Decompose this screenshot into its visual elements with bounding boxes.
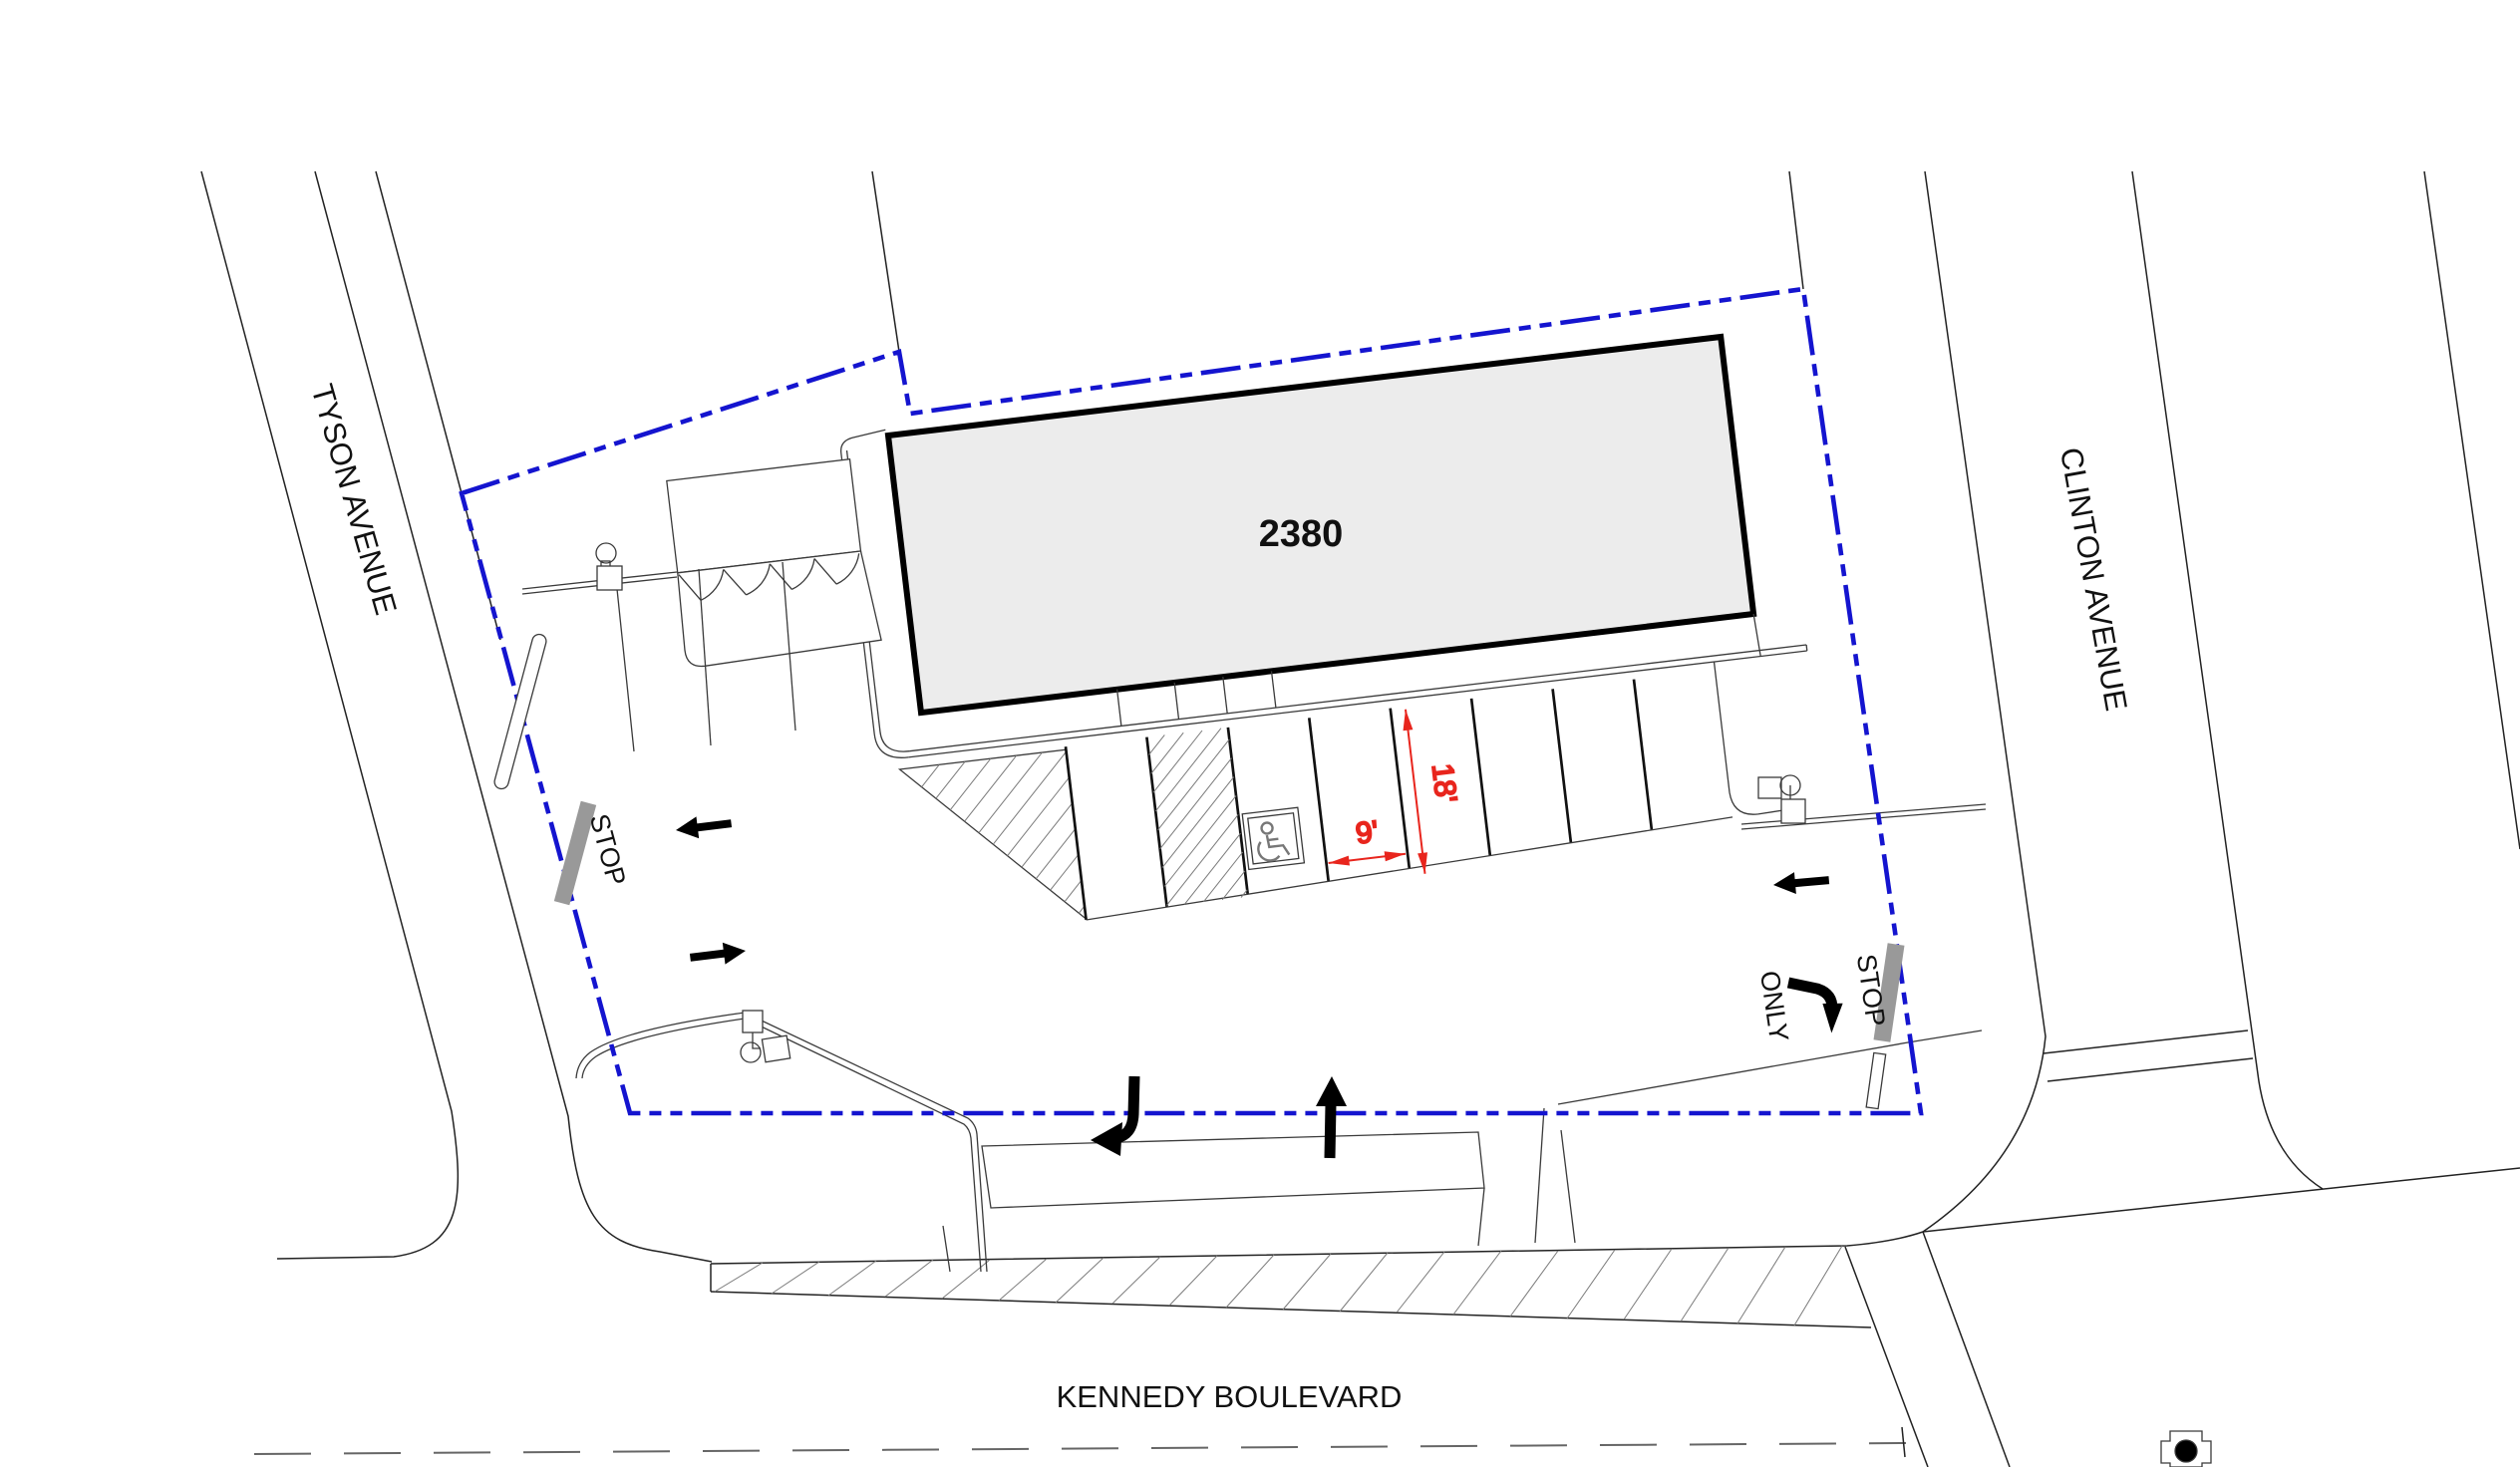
svg-text:KENNEDY BOULEVARD: KENNEDY BOULEVARD	[1057, 1379, 1403, 1414]
svg-text:9': 9'	[1354, 815, 1380, 850]
svg-text:2380: 2380	[1259, 513, 1344, 555]
svg-text:18': 18'	[1425, 761, 1462, 804]
